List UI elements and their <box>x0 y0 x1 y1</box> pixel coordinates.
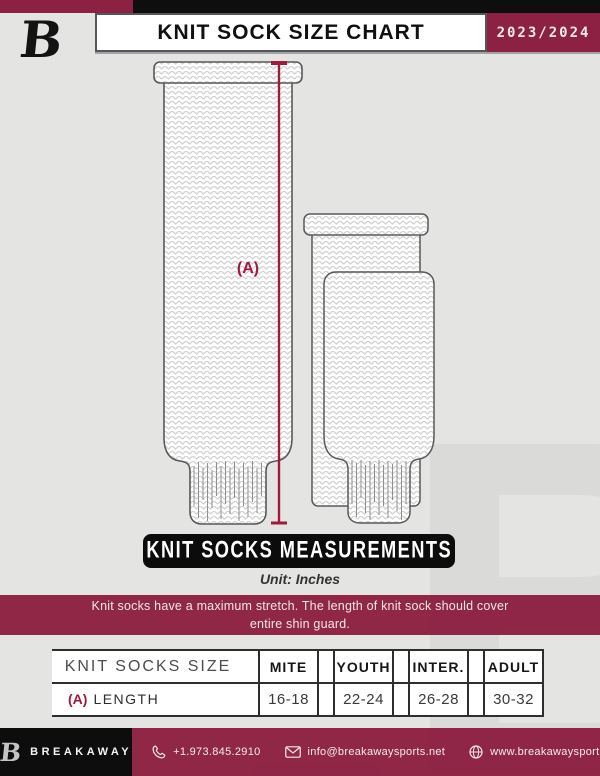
row-label-length: (A) LENGTH <box>52 683 244 715</box>
envelope-icon <box>285 746 301 758</box>
size-table: KNIT SOCKS SIZE (A) LENGTH MITE 16-18 YO… <box>52 649 544 717</box>
contact-phone: +1.973.845.2910 <box>152 745 260 759</box>
column-value: 26-28 <box>410 683 467 715</box>
measurements-banner: KNIT SOCKS MEASUREMENTS <box>143 534 455 568</box>
season-label: 2023/2024 <box>497 25 591 41</box>
column-value: 22-24 <box>335 683 392 715</box>
column-header: INTER. <box>410 651 467 683</box>
brand-name: BREAKAWAY <box>30 746 132 758</box>
sock-diagram: (A) <box>130 56 470 532</box>
column-header: YOUTH <box>335 651 392 683</box>
stretch-note: Knit socks have a maximum stretch. The l… <box>0 595 600 635</box>
top-strip-maroon <box>0 0 133 13</box>
website-url: www.breakawaysports.net <box>490 746 600 758</box>
contact-email: info@breakawaysports.net <box>285 746 446 758</box>
phone-number: +1.973.845.2910 <box>173 746 260 758</box>
measure-label-a: (A) <box>237 260 259 277</box>
table-title: KNIT SOCKS SIZE <box>52 651 244 683</box>
page-title: KNIT SOCK SIZE CHART <box>157 21 424 45</box>
column-header: ADULT <box>485 651 542 683</box>
row-label-text: LENGTH <box>93 691 159 707</box>
globe-icon <box>469 745 483 759</box>
column-header: MITE <box>260 651 317 683</box>
row-label-prefix: (A) <box>68 691 87 707</box>
page: B B KNIT SOCK SIZE CHART 2023/2024 <box>0 0 600 776</box>
contact-website: www.breakawaysports.net <box>469 745 600 759</box>
breakaway-logo-icon: B <box>0 740 22 765</box>
title-banner: KNIT SOCK SIZE CHART <box>95 13 487 52</box>
column-value: 30-32 <box>485 683 542 715</box>
phone-icon <box>152 745 166 759</box>
season-badge: 2023/2024 <box>487 13 600 52</box>
stretch-note-line1: Knit socks have a maximum stretch. The l… <box>92 597 509 615</box>
top-strip-black <box>133 0 600 13</box>
footer: B BREAKAWAY +1.973.845.2910 info@breakaw… <box>0 728 600 776</box>
table-row-divider <box>52 682 544 684</box>
footer-contact: +1.973.845.2910 info@breakawaysports.net… <box>132 728 600 776</box>
breakaway-logo-icon: B <box>17 14 65 66</box>
unit-label: Unit: Inches <box>0 571 600 587</box>
measurements-banner-label: KNIT SOCKS MEASUREMENTS <box>146 537 452 565</box>
email-address: info@breakawaysports.net <box>308 746 446 758</box>
footer-brand: B BREAKAWAY <box>0 728 132 776</box>
stretch-note-line2: entire shin guard. <box>250 615 350 633</box>
column-value: 16-18 <box>260 683 317 715</box>
